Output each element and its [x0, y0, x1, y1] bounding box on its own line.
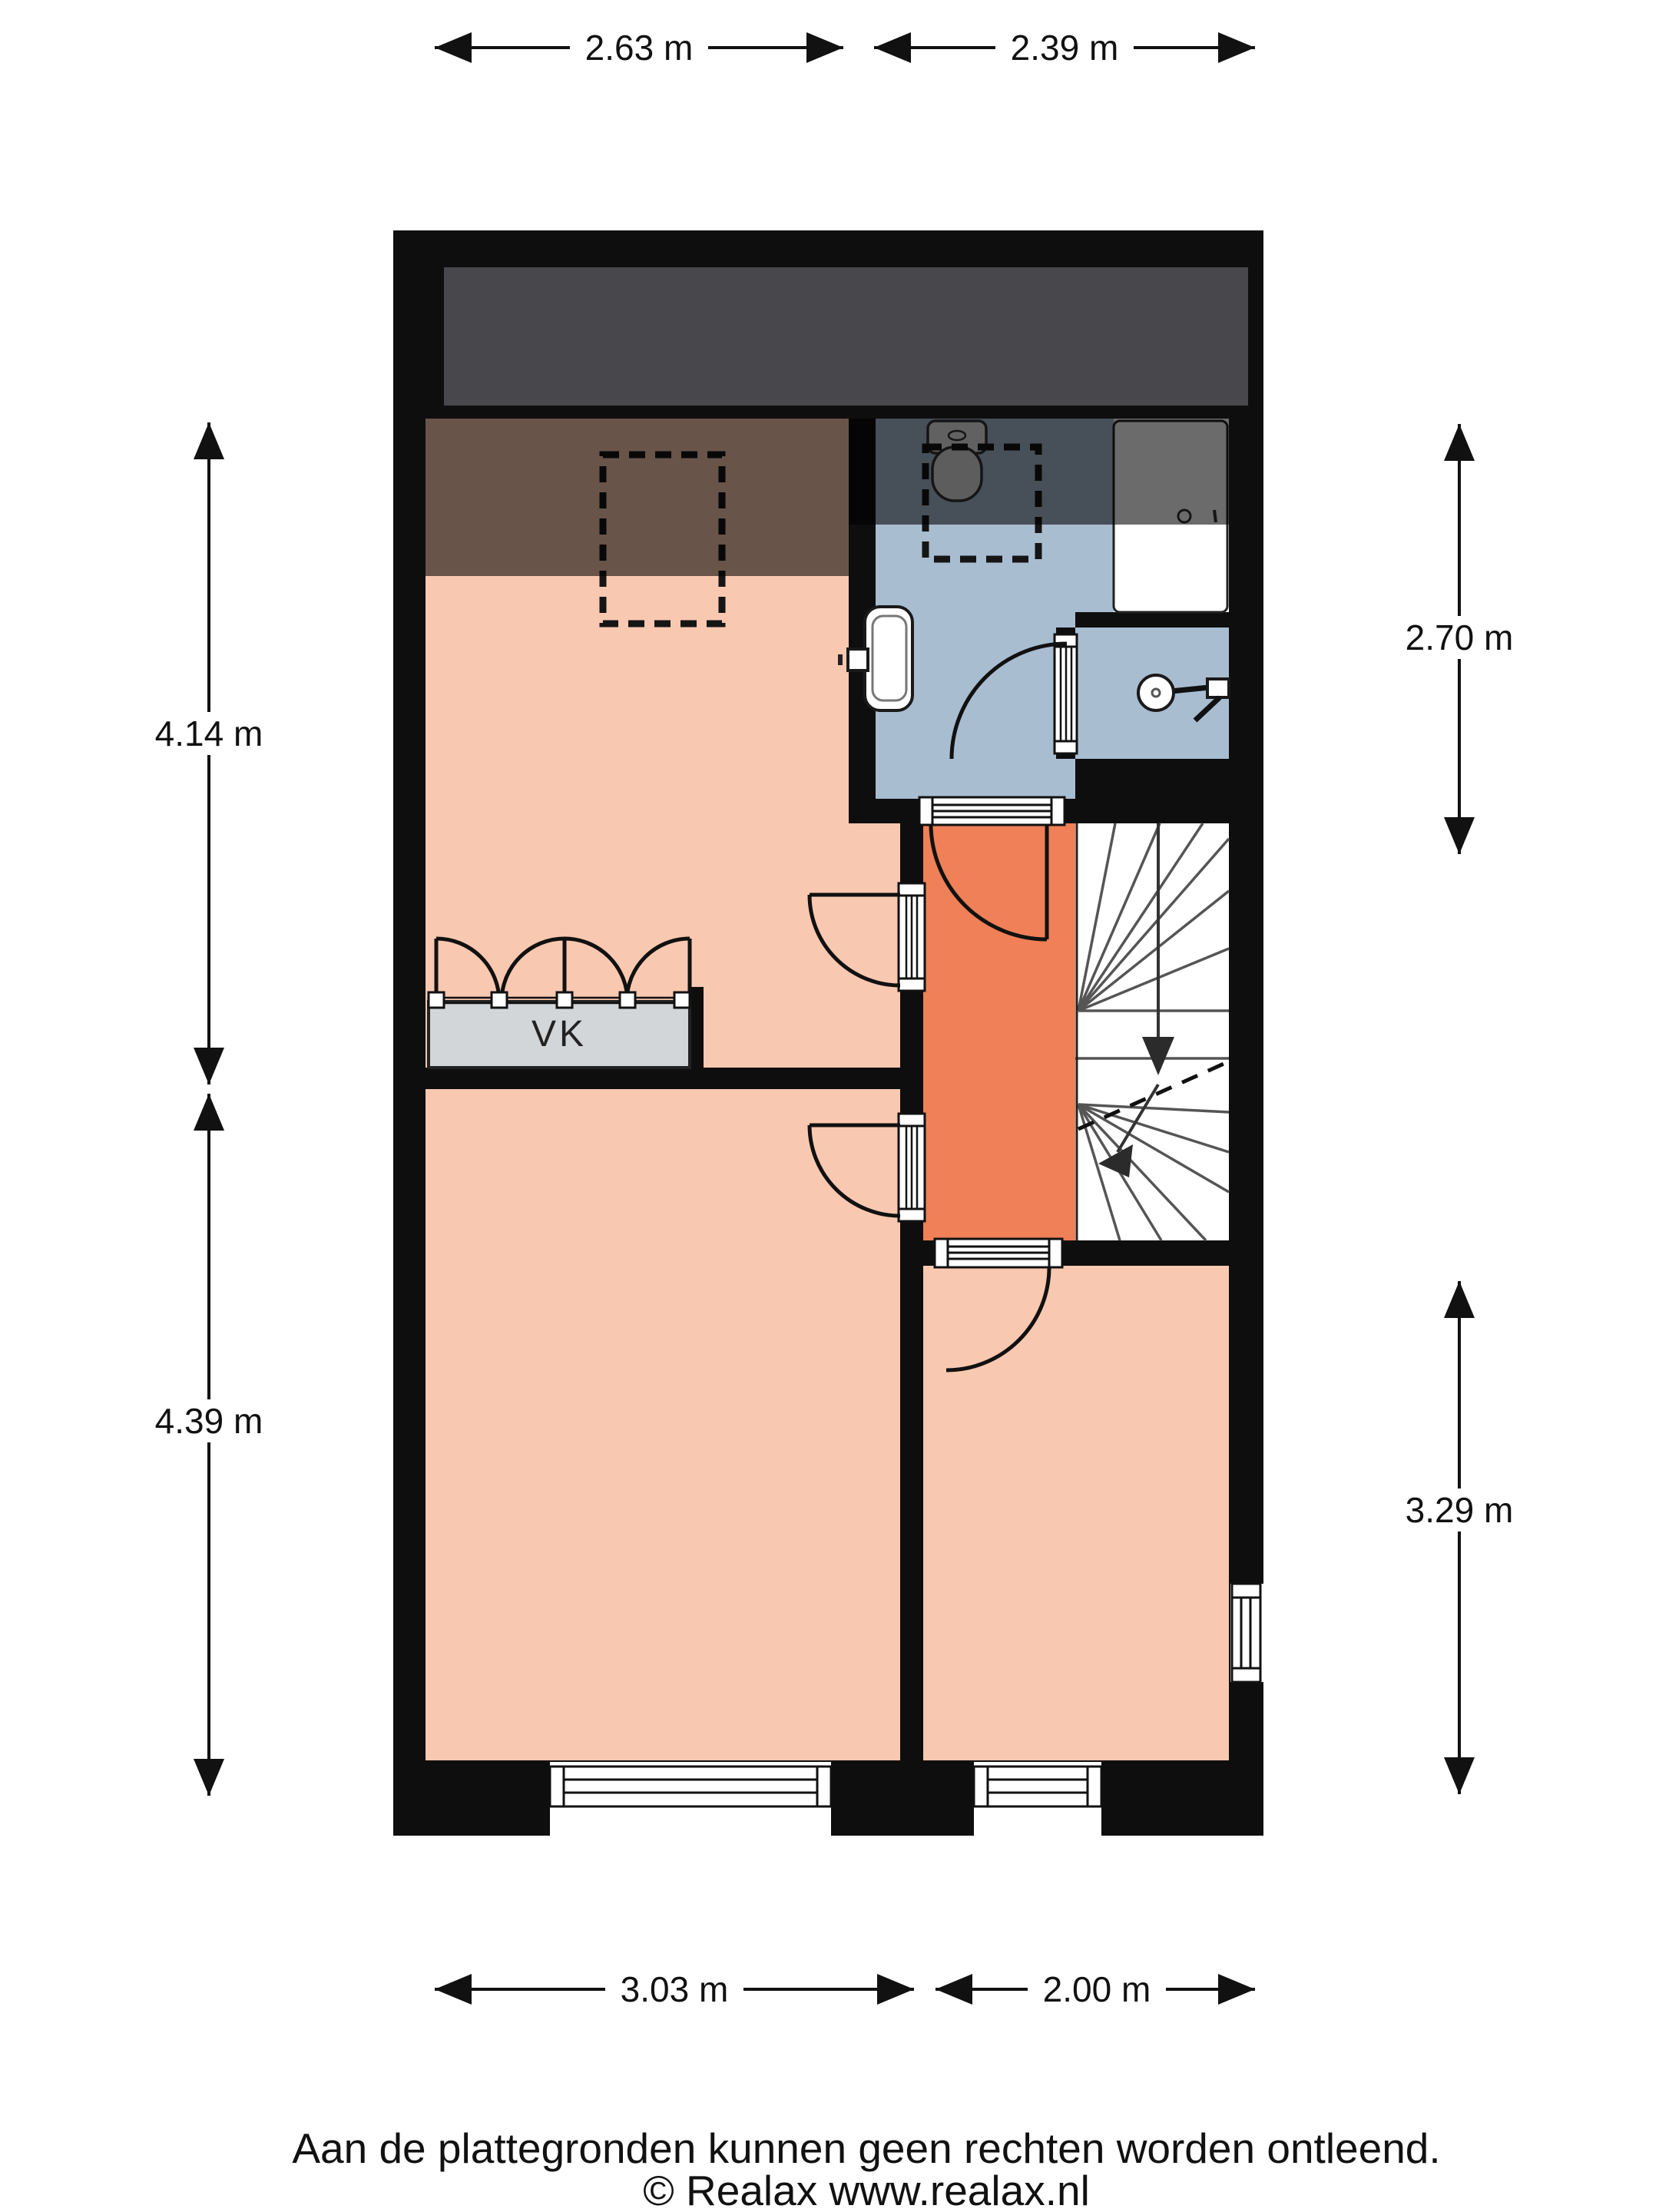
- footer-copyright: © Realax www.realax.nl: [643, 2167, 1090, 2212]
- wall-left: [393, 230, 426, 1836]
- wall-shower-bottom: [1075, 759, 1229, 823]
- wall-below-washer: [1075, 612, 1229, 628]
- footer-disclaimer: Aan de plattegronden kunnen geen rechten…: [292, 2124, 1440, 2172]
- floorplan-canvas: VK: [0, 0, 1659, 2212]
- floorplan: VK: [393, 230, 1263, 1836]
- dim-label-right-lower: 3.29 m: [1406, 1490, 1514, 1530]
- dim-label-top-left: 2.63 m: [585, 28, 694, 68]
- wall-living-bedroom: [393, 1068, 900, 1089]
- closet-label: VK: [531, 1014, 587, 1055]
- wall-stairs-bottom: [1075, 1240, 1263, 1266]
- roof-overlay-left: [426, 419, 849, 576]
- room-bedroom-left: [426, 1089, 900, 1760]
- dim-label-left-lower: 4.39 m: [155, 1401, 263, 1441]
- dim-label-bottom-right: 2.00 m: [1043, 1969, 1151, 2009]
- roof-overlay-right: [849, 419, 1229, 525]
- dim-label-right-upper: 2.70 m: [1406, 618, 1514, 657]
- room-bedroom-right: [923, 1266, 1229, 1760]
- dim-label-left-upper: 4.14 m: [155, 714, 263, 753]
- footer: Aan de plattegronden kunnen geen rechten…: [292, 2124, 1440, 2212]
- window-bottom-right: [974, 1762, 1101, 1836]
- room-hall: [923, 823, 1075, 1240]
- shower-mixer-icon: [1207, 679, 1229, 697]
- dim-label-top-right: 2.39 m: [1011, 28, 1119, 68]
- sink-tap-icon: [848, 649, 868, 671]
- dim-label-bottom-left: 3.03 m: [621, 1969, 729, 2009]
- attic-void: [444, 267, 1248, 406]
- window-bottom-left: [550, 1762, 831, 1836]
- shower-head-icon: [1138, 675, 1174, 710]
- window-right-wall: [1230, 1584, 1263, 1682]
